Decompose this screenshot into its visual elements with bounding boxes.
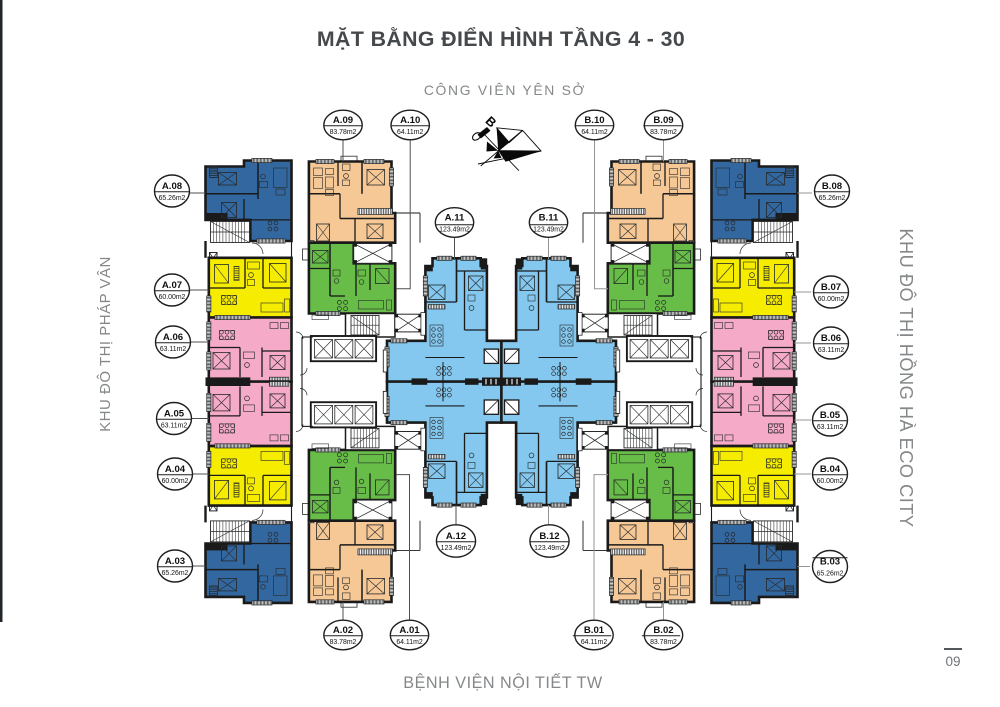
svg-text:B.12: B.12 (539, 531, 559, 542)
svg-text:65.26m2: 65.26m2 (162, 570, 189, 577)
svg-text:60.00m2: 60.00m2 (818, 296, 845, 303)
svg-text:123.49m2: 123.49m2 (533, 227, 564, 234)
svg-text:B.08: B.08 (822, 181, 843, 192)
svg-text:60.00m2: 60.00m2 (159, 294, 186, 301)
svg-text:60.00m2: 60.00m2 (817, 478, 844, 485)
svg-text:64.11m2: 64.11m2 (581, 639, 607, 646)
svg-text:60.00m2: 60.00m2 (162, 478, 189, 485)
svg-text:CÔNG VIÊN YÊN SỞ: CÔNG VIÊN YÊN SỞ (424, 81, 586, 98)
svg-text:A.06: A.06 (163, 332, 183, 343)
svg-text:B.07: B.07 (821, 282, 841, 293)
svg-text:123.49m2: 123.49m2 (441, 545, 472, 552)
svg-text:B.11: B.11 (539, 213, 559, 224)
svg-text:A.04: A.04 (165, 464, 186, 475)
svg-text:64.11m2: 64.11m2 (396, 639, 422, 646)
svg-text:123.49m2: 123.49m2 (534, 545, 565, 552)
svg-text:65.26m2: 65.26m2 (817, 571, 844, 578)
svg-text:64.11m2: 64.11m2 (581, 129, 607, 136)
svg-text:B.05: B.05 (820, 410, 841, 421)
svg-text:A.09: A.09 (333, 115, 353, 126)
svg-text:64.11m2: 64.11m2 (397, 129, 423, 136)
svg-text:MẶT BẰNG ĐIỂN HÌNH TẦNG 4 - 30: MẶT BẰNG ĐIỂN HÌNH TẦNG 4 - 30 (317, 26, 685, 51)
svg-text:A.01: A.01 (399, 625, 420, 636)
svg-text:63.11m2: 63.11m2 (161, 423, 187, 430)
svg-text:B.01: B.01 (584, 625, 605, 636)
svg-text:A.11: A.11 (445, 213, 465, 224)
svg-text:123.49m2: 123.49m2 (439, 227, 470, 234)
svg-text:65.26m2: 65.26m2 (819, 195, 846, 202)
svg-text:A.07: A.07 (162, 280, 182, 291)
svg-text:B.04: B.04 (820, 464, 841, 475)
svg-text:83.78m2: 83.78m2 (650, 639, 677, 646)
svg-text:B.09: B.09 (653, 115, 673, 126)
svg-text:BỆNH VIỆN NỘI TIẾT TW: BỆNH VIỆN NỘI TIẾT TW (403, 673, 603, 692)
svg-text:09: 09 (945, 654, 960, 669)
svg-text:B.10: B.10 (584, 115, 604, 126)
svg-text:B.06: B.06 (821, 333, 841, 344)
svg-text:KHU ĐÔ THỊ PHÁP VÂN: KHU ĐÔ THỊ PHÁP VÂN (97, 256, 114, 432)
svg-text:A.12: A.12 (446, 531, 466, 542)
svg-text:83.78m2: 83.78m2 (330, 639, 357, 646)
svg-text:B.02: B.02 (653, 625, 673, 636)
svg-text:B.03: B.03 (820, 557, 840, 568)
svg-text:65.26m2: 65.26m2 (159, 195, 186, 202)
svg-text:A.02: A.02 (333, 625, 353, 636)
svg-text:63.11m2: 63.11m2 (817, 424, 843, 431)
svg-text:63.11m2: 63.11m2 (160, 346, 186, 353)
svg-text:A.03: A.03 (165, 556, 185, 567)
svg-text:A.08: A.08 (162, 181, 183, 192)
svg-text:63.11m2: 63.11m2 (818, 347, 844, 354)
svg-text:A.10: A.10 (400, 115, 420, 126)
svg-text:KHU ĐÔ THỊ HỒNG HÀ ECO CITY: KHU ĐÔ THỊ HỒNG HÀ ECO CITY (896, 228, 917, 527)
svg-text:83.78m2: 83.78m2 (330, 129, 357, 136)
svg-text:A.05: A.05 (164, 409, 185, 420)
svg-text:83.78m2: 83.78m2 (650, 129, 677, 136)
